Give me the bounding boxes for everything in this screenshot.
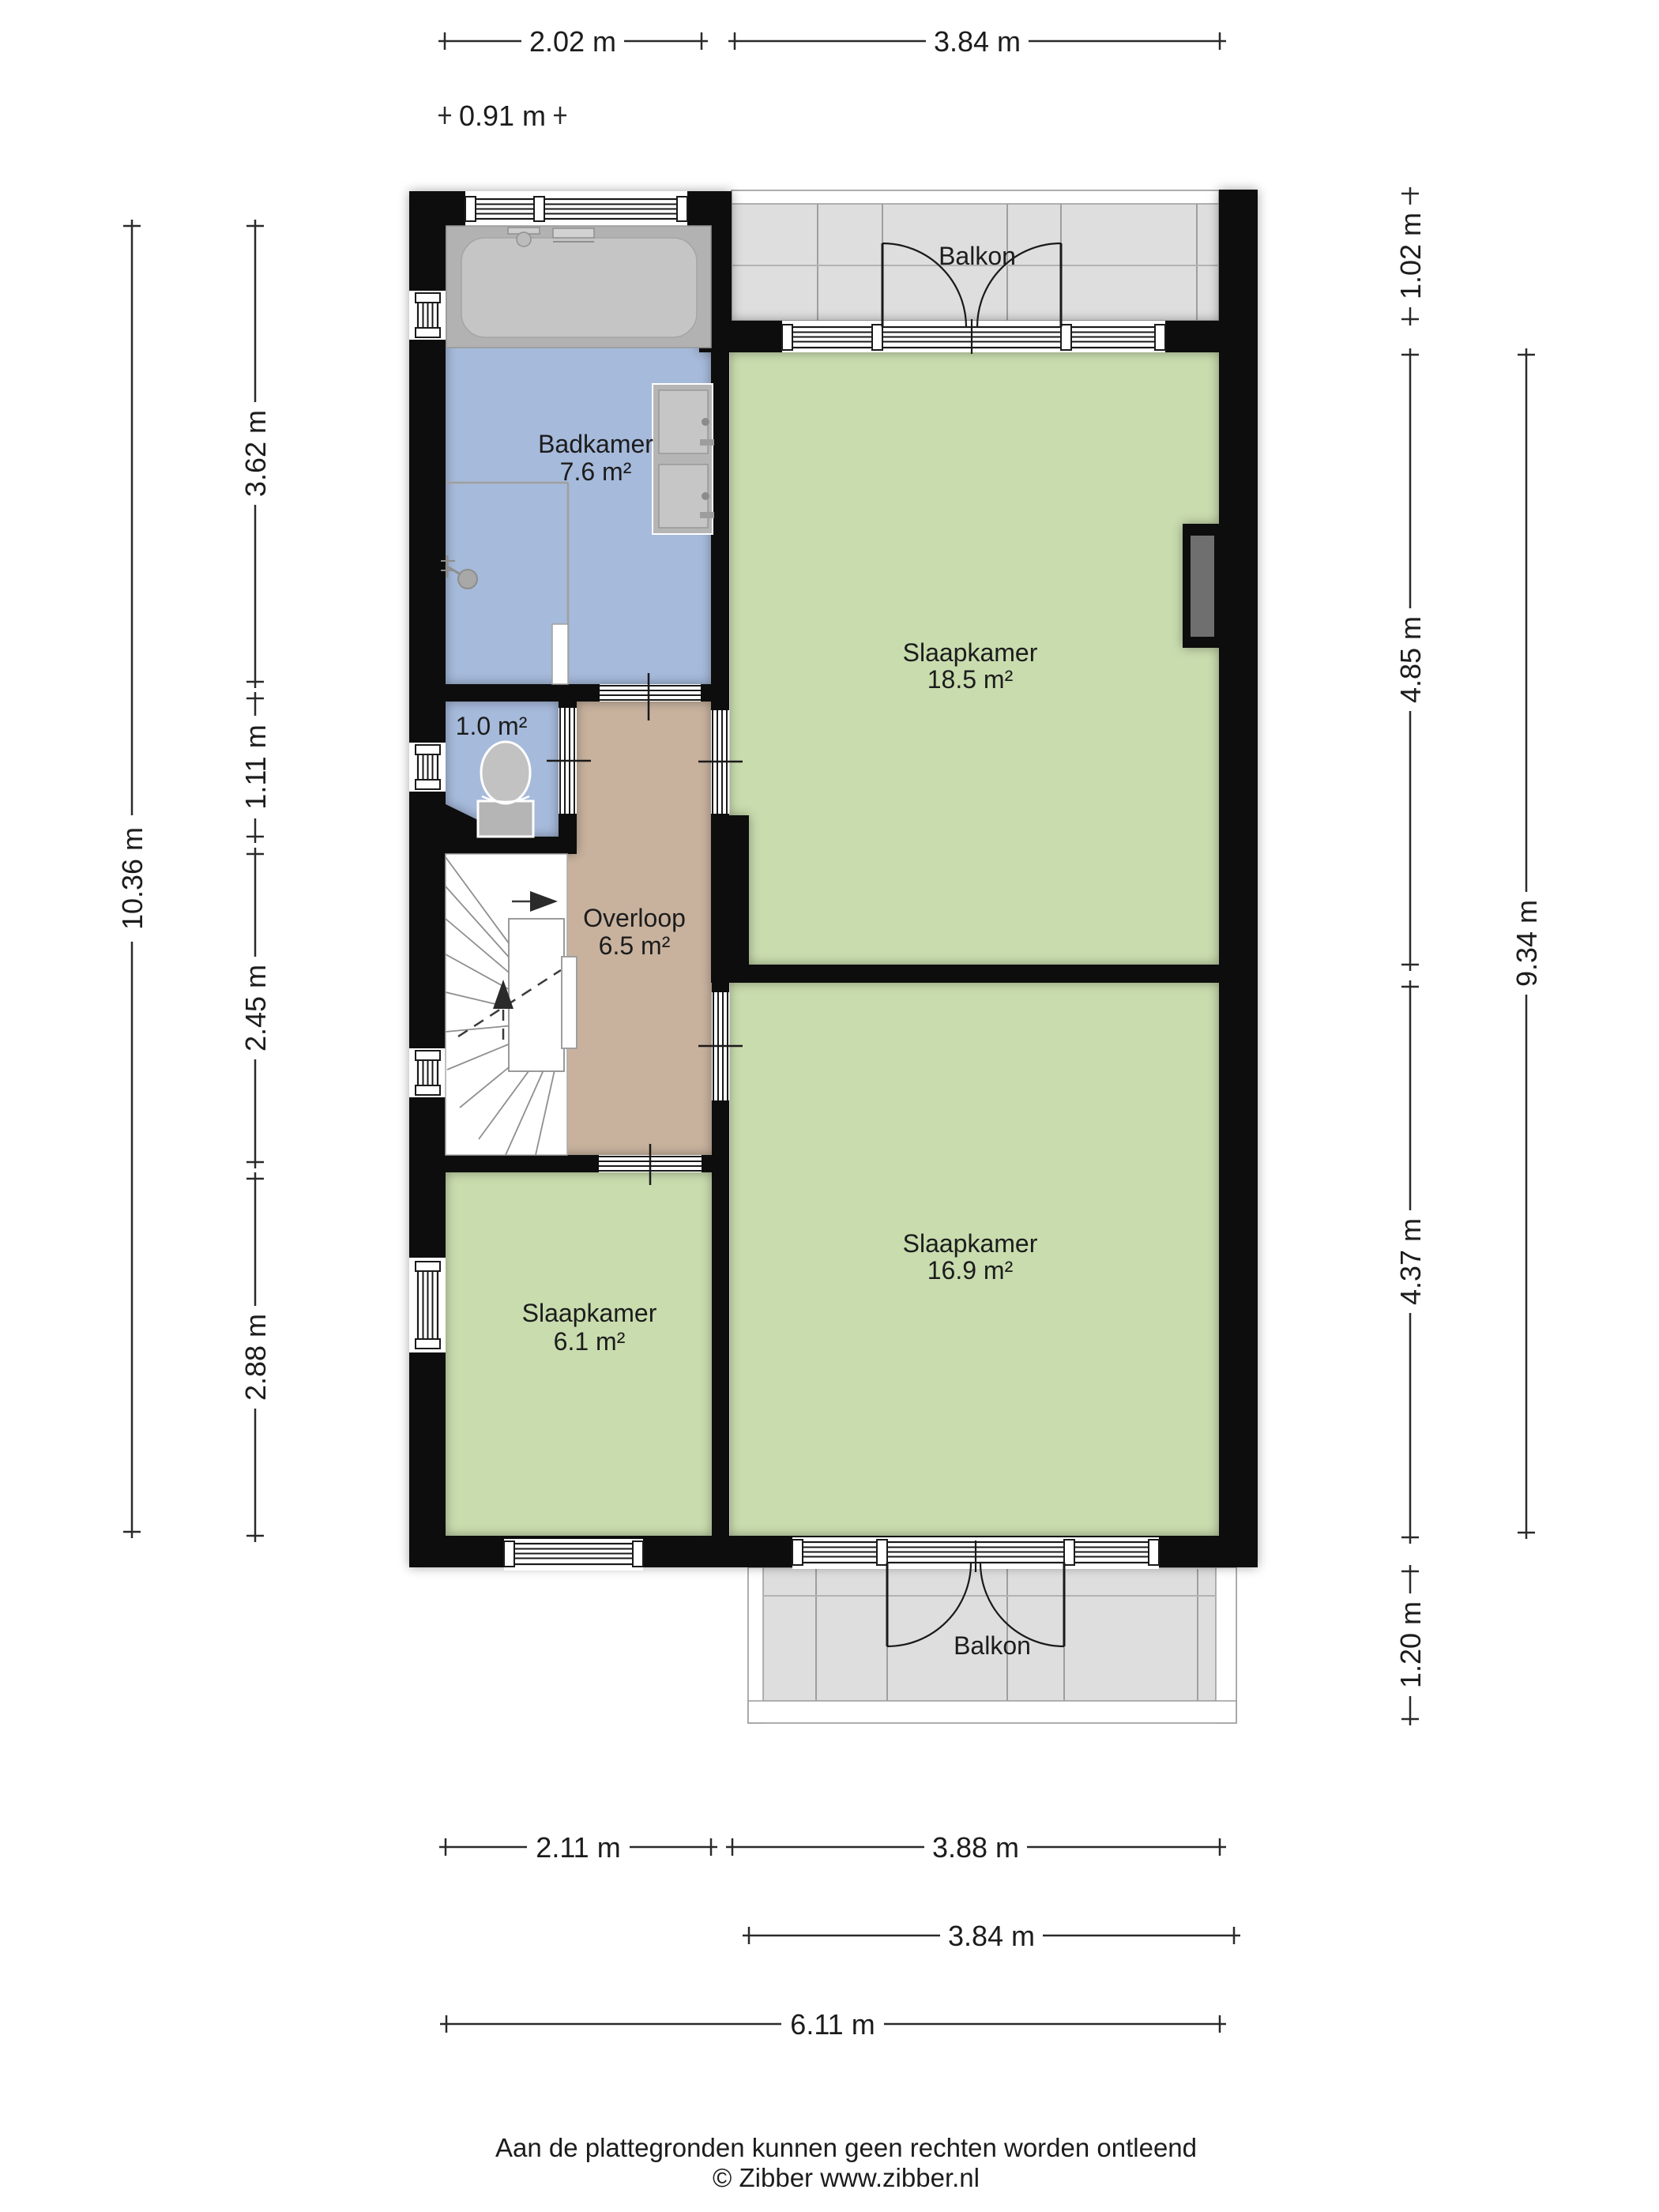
- svg-text:1.20 m: 1.20 m: [1394, 1601, 1427, 1688]
- svg-text:Badkamer: Badkamer: [538, 430, 653, 458]
- svg-text:4.37 m: 4.37 m: [1394, 1218, 1427, 1305]
- svg-text:1.02 m: 1.02 m: [1394, 213, 1427, 299]
- svg-text:Slaapkamer: Slaapkamer: [522, 1299, 657, 1327]
- svg-text:Aan de plattegronden kunnen ge: Aan de plattegronden kunnen geen rechten…: [495, 2133, 1197, 2162]
- svg-text:Balkon: Balkon: [954, 1631, 1031, 1660]
- svg-text:7.6 m²: 7.6 m²: [560, 457, 632, 486]
- svg-text:© Zibber www.zibber.nl: © Zibber www.zibber.nl: [713, 2163, 980, 2192]
- svg-text:6.5 m²: 6.5 m²: [599, 931, 671, 960]
- svg-text:9.34 m: 9.34 m: [1510, 900, 1543, 987]
- svg-text:3.84 m: 3.84 m: [948, 1920, 1035, 1952]
- svg-text:4.85 m: 4.85 m: [1394, 616, 1427, 703]
- svg-text:6.1 m²: 6.1 m²: [554, 1327, 626, 1356]
- svg-text:1.11 m: 1.11 m: [239, 724, 272, 809]
- svg-text:2.88 m: 2.88 m: [239, 1314, 272, 1401]
- svg-text:18.5 m²: 18.5 m²: [927, 665, 1014, 694]
- svg-text:3.84 m: 3.84 m: [934, 25, 1021, 58]
- svg-text:3.62 m: 3.62 m: [239, 410, 272, 497]
- svg-text:Balkon: Balkon: [939, 242, 1016, 270]
- svg-text:2.11 m: 2.11 m: [536, 1831, 620, 1864]
- svg-text:0.91 m: 0.91 m: [459, 100, 546, 132]
- svg-text:Slaapkamer: Slaapkamer: [903, 638, 1038, 667]
- svg-text:16.9 m²: 16.9 m²: [927, 1256, 1014, 1285]
- svg-text:3.88 m: 3.88 m: [932, 1831, 1019, 1864]
- svg-text:Overloop: Overloop: [583, 904, 686, 932]
- svg-text:10.36 m: 10.36 m: [116, 827, 149, 930]
- svg-text:Slaapkamer: Slaapkamer: [903, 1229, 1038, 1258]
- svg-text:6.11 m: 6.11 m: [790, 2008, 875, 2041]
- svg-text:1.0 m²: 1.0 m²: [456, 712, 528, 740]
- svg-text:2.45 m: 2.45 m: [239, 965, 272, 1051]
- svg-text:2.02 m: 2.02 m: [529, 25, 616, 58]
